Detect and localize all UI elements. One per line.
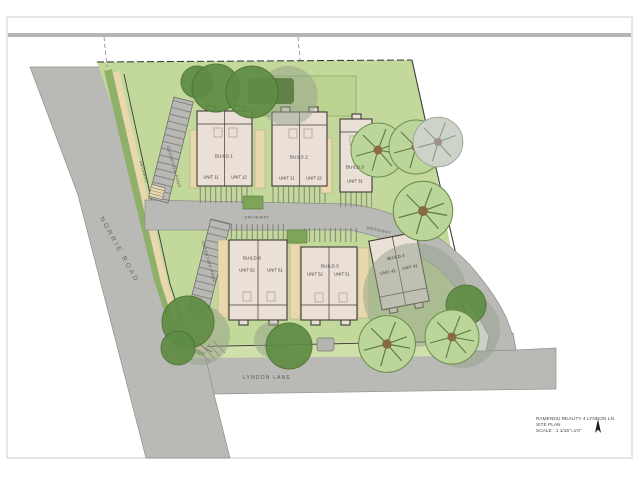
building-3-label: BUILD.3 (346, 165, 364, 170)
top-edge-band (8, 33, 631, 37)
building-2-label: BUILD.2 (290, 155, 308, 160)
lyndon-lane-label: LYNDON LANE (243, 375, 291, 381)
unit-11-label: UNIT 11 (203, 175, 218, 180)
unit-12-label: UNIT 12 (231, 175, 247, 180)
building-1-label: BUILD.1 (215, 154, 233, 159)
driveway-upper-label: DRIVEWAY (244, 215, 269, 220)
unit-22-label: UNIT 22 (306, 176, 322, 181)
green-pad-upper (243, 196, 263, 209)
north-arrow-icon (592, 419, 604, 435)
unit-52-label: UNIT 52 (307, 272, 323, 277)
green-pad-lower (287, 230, 307, 243)
unit-21-label: UNIT 21 (279, 176, 295, 181)
unit-62-label: UNIT 62 (239, 268, 255, 273)
unit-51-label: UNIT 51 (334, 272, 350, 277)
unit-61-label: UNIT 61 (267, 268, 283, 273)
site-plan-sheet: NORRIE ROAD LYNDON LANE DRIVEWAY DRIVEWA… (0, 0, 640, 480)
building-5-label: BUILD.5 (321, 264, 339, 269)
site-plan-drawing (0, 0, 640, 480)
unit-31-label: UNIT 31 (347, 179, 363, 184)
utility-pad (317, 338, 334, 351)
building-5-shape (301, 247, 357, 325)
building-6-shape (229, 240, 287, 325)
building-6-label: BUILD.6 (243, 256, 261, 261)
